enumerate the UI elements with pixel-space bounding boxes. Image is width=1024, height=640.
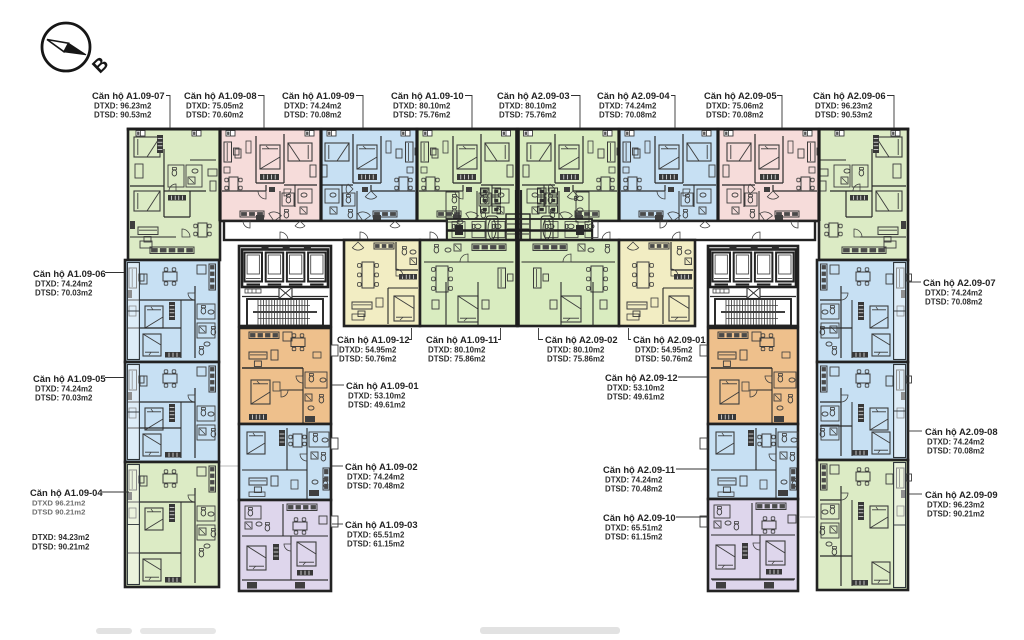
- svg-text:DTXD: 96.23m2: DTXD: 96.23m2: [815, 102, 873, 111]
- svg-text:DTSD 90.21m2: DTSD 90.21m2: [32, 508, 85, 517]
- svg-text:DTXD: 75.06m2: DTXD: 75.06m2: [706, 102, 764, 111]
- svg-text:DTXD: 74.24m2: DTXD: 74.24m2: [347, 473, 405, 482]
- svg-text:Căn hộ A2.09-12: Căn hộ A2.09-12: [605, 372, 678, 383]
- svg-text:DTSD: 70.08m2: DTSD: 70.08m2: [925, 298, 983, 307]
- svg-text:Căn hộ A2.09-10: Căn hộ A2.09-10: [603, 512, 676, 523]
- svg-text:DTXD: 80.10m2: DTXD: 80.10m2: [499, 102, 557, 111]
- svg-text:DTXD: 94.23m2: DTXD: 94.23m2: [32, 533, 90, 542]
- svg-text:Căn hộ A2.09-02: Căn hộ A2.09-02: [545, 334, 618, 345]
- svg-text:Căn hộ A1.09-01: Căn hộ A1.09-01: [346, 380, 419, 391]
- svg-text:DTXD: 74.24m2: DTXD: 74.24m2: [927, 438, 985, 447]
- svg-text:DTSD: 50.76m2: DTSD: 50.76m2: [339, 355, 397, 364]
- svg-text:Căn hộ A2.09-09: Căn hộ A2.09-09: [925, 489, 998, 500]
- svg-text:DTSD: 61.15m2: DTSD: 61.15m2: [347, 540, 405, 549]
- svg-text:DTSD: 75.86m2: DTSD: 75.86m2: [547, 355, 605, 364]
- svg-text:DTXD: 96.23m2: DTXD: 96.23m2: [927, 501, 985, 510]
- svg-text:Căn hộ A1.09-03: Căn hộ A1.09-03: [345, 519, 418, 530]
- svg-text:Căn hộ A2.09-01: Căn hộ A2.09-01: [633, 334, 706, 345]
- svg-text:Căn hộ A1.09-09: Căn hộ A1.09-09: [282, 90, 355, 101]
- svg-text:DTSD: 70.48m2: DTSD: 70.48m2: [347, 482, 405, 491]
- svg-text:Căn hộ A2.09-06: Căn hộ A2.09-06: [813, 90, 886, 101]
- svg-text:DTSD: 49.61m2: DTSD: 49.61m2: [607, 393, 665, 402]
- svg-text:Căn hộ A1.09-04: Căn hộ A1.09-04: [30, 487, 103, 498]
- svg-text:Căn hộ A2.09-07: Căn hộ A2.09-07: [923, 277, 996, 288]
- svg-text:DTSD: 75.86m2: DTSD: 75.86m2: [428, 355, 486, 364]
- svg-text:DTXD: 80.10m2: DTXD: 80.10m2: [428, 346, 486, 355]
- svg-text:Căn hộ A1.09-12: Căn hộ A1.09-12: [337, 334, 410, 345]
- svg-text:DTXD: 65.51m2: DTXD: 65.51m2: [605, 524, 663, 533]
- svg-text:DTXD 96.21m2: DTXD 96.21m2: [32, 499, 85, 508]
- svg-text:DTSD: 90.21m2: DTSD: 90.21m2: [32, 543, 90, 552]
- svg-text:DTXD: 65.51m2: DTXD: 65.51m2: [347, 531, 405, 540]
- svg-text:DTSD: 75.76m2: DTSD: 75.76m2: [393, 111, 451, 120]
- svg-text:DTSD: 75.76m2: DTSD: 75.76m2: [499, 111, 557, 120]
- svg-text:Căn hộ A1.09-08: Căn hộ A1.09-08: [184, 90, 257, 101]
- svg-text:Căn hộ A1.09-07: Căn hộ A1.09-07: [92, 90, 165, 101]
- svg-text:DTSD: 70.60m2: DTSD: 70.60m2: [186, 111, 244, 120]
- svg-text:DTSD: 70.08m2: DTSD: 70.08m2: [706, 111, 764, 120]
- svg-text:DTXD: 54.95m2: DTXD: 54.95m2: [339, 346, 397, 355]
- svg-text:Căn hộ A2.09-05: Căn hộ A2.09-05: [704, 90, 777, 101]
- svg-text:DTSD: 49.61m2: DTSD: 49.61m2: [348, 401, 406, 410]
- svg-text:DTXD: 80.10m2: DTXD: 80.10m2: [393, 102, 451, 111]
- svg-text:DTSD: 90.21m2: DTSD: 90.21m2: [927, 510, 985, 519]
- svg-text:Căn hộ A2.09-08: Căn hộ A2.09-08: [925, 426, 998, 437]
- svg-text:DTXD: 74.24m2: DTXD: 74.24m2: [35, 385, 93, 394]
- svg-text:Căn hộ A2.09-11: Căn hộ A2.09-11: [603, 464, 675, 475]
- svg-text:DTSD: 70.03m2: DTSD: 70.03m2: [35, 394, 93, 403]
- svg-text:Căn hộ A1.09-05: Căn hộ A1.09-05: [33, 373, 106, 384]
- svg-text:DTXD: 74.24m2: DTXD: 74.24m2: [925, 289, 983, 298]
- svg-text:DTXD: 74.24m2: DTXD: 74.24m2: [599, 102, 657, 111]
- svg-text:Căn hộ A1.09-10: Căn hộ A1.09-10: [391, 90, 464, 101]
- svg-text:DTSD: 70.48m2: DTSD: 70.48m2: [605, 485, 663, 494]
- svg-text:DTSD: 61.15m2: DTSD: 61.15m2: [605, 533, 663, 542]
- svg-text:DTSD: 70.08m2: DTSD: 70.08m2: [927, 447, 985, 456]
- svg-text:DTSD: 90.53m2: DTSD: 90.53m2: [94, 111, 152, 120]
- svg-text:DTXD: 75.05m2: DTXD: 75.05m2: [186, 102, 244, 111]
- svg-text:Căn hộ A1.09-06: Căn hộ A1.09-06: [33, 268, 106, 279]
- svg-text:DTXD: 80.10m2: DTXD: 80.10m2: [547, 346, 605, 355]
- svg-text:DTSD: 70.08m2: DTSD: 70.08m2: [599, 111, 657, 120]
- svg-text:DTXD: 54.95m2: DTXD: 54.95m2: [635, 346, 693, 355]
- svg-text:DTXD: 74.24m2: DTXD: 74.24m2: [35, 280, 93, 289]
- svg-text:DTSD: 70.08m2: DTSD: 70.08m2: [284, 111, 342, 120]
- svg-text:DTXD: 53.10m2: DTXD: 53.10m2: [348, 392, 406, 401]
- svg-text:DTSD: 90.53m2: DTSD: 90.53m2: [815, 111, 873, 120]
- svg-text:Căn hộ A1.09-02: Căn hộ A1.09-02: [345, 461, 418, 472]
- svg-text:DTXD: 74.24m2: DTXD: 74.24m2: [605, 476, 663, 485]
- svg-text:DTXD: 74.24m2: DTXD: 74.24m2: [284, 102, 342, 111]
- svg-text:Căn hộ A2.09-03: Căn hộ A2.09-03: [497, 90, 570, 101]
- svg-text:DTXD: 53.10m2: DTXD: 53.10m2: [607, 384, 665, 393]
- svg-text:DTXD: 96.23m2: DTXD: 96.23m2: [94, 102, 152, 111]
- svg-text:Căn hộ A1.09-11: Căn hộ A1.09-11: [426, 334, 498, 345]
- svg-text:DTSD: 70.03m2: DTSD: 70.03m2: [35, 289, 93, 298]
- svg-text:Căn hộ A2.09-04: Căn hộ A2.09-04: [597, 90, 670, 101]
- svg-text:DTSD: 50.76m2: DTSD: 50.76m2: [635, 355, 693, 364]
